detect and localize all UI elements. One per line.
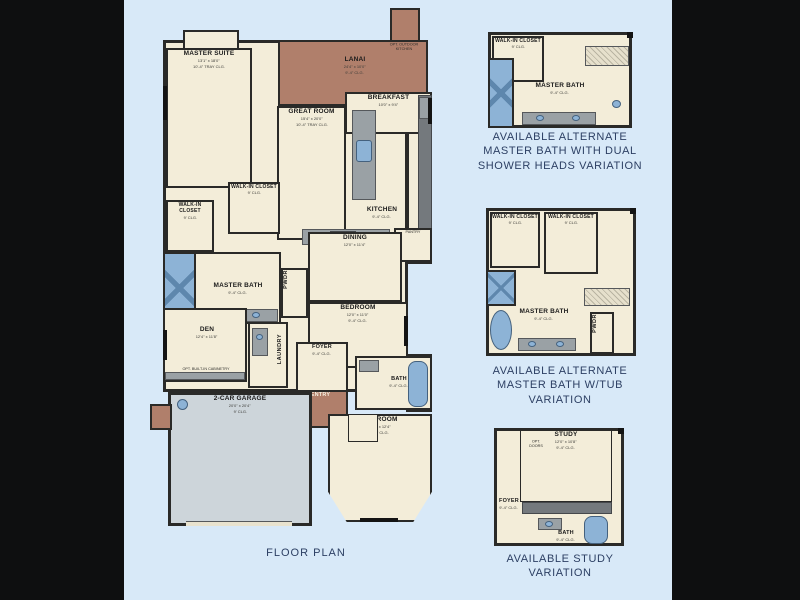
room-garage: 2-CAR GARAGE 20'0" x 20'4" 9' CLG. <box>168 392 312 526</box>
room-dims-lanai: 24'4" x 10'0" <box>344 65 366 70</box>
v3-opt-doors-note: OPT. DOORS <box>526 440 546 448</box>
room-label-walkin-closet-1: WALK-IN CLOSET <box>231 184 277 190</box>
v2-linen-shelves <box>584 288 630 306</box>
room-label-bedroom-1: BEDROOM <box>340 304 375 312</box>
v2-sink-2 <box>556 341 564 347</box>
room-label-pwdr: PWDR <box>283 270 289 289</box>
v1-toilet <box>612 100 621 108</box>
v2-wall-post <box>630 208 636 214</box>
laundry-sink <box>256 334 263 340</box>
opt-den-note: OPT. BUILT-IN CABINETRY <box>177 367 236 371</box>
v3-study: STUDY 12'0" x 10'8" 9'-4" CLG. OPT. DOOR… <box>520 430 612 502</box>
room-label-great-room: GREAT ROOM <box>288 108 334 116</box>
opt-outdoor-kitchen-note: OPT. OUTDOOR KITCHEN <box>389 43 419 51</box>
v1-walkin-closet-dims: 9' CLG. <box>511 45 524 50</box>
v1-sink-2 <box>572 115 580 121</box>
caption-line: MASTER BATH W/TUB <box>470 378 650 392</box>
room-note-master-suite: 10'-4" TRAY CLG. <box>193 65 225 70</box>
room-walkin-closet-1: WALK-IN CLOSET 9' CLG. <box>228 182 280 234</box>
room-master-suite: MASTER SUITE 13'1" x 18'0" 10'-4" TRAY C… <box>166 48 252 188</box>
room-foyer: FOYER 9'-4" CLG. <box>296 342 348 392</box>
caption-line: AVAILABLE ALTERNATE <box>470 364 650 378</box>
v2-sink-1 <box>528 341 536 347</box>
room-bedroom-2: BEDROOM 12'0" x 12'4" 9'-4" CLG. <box>328 414 432 522</box>
v2-pwdr: PWDR <box>590 312 614 354</box>
den-cabinet <box>165 372 245 380</box>
room-label-garage: 2-CAR GARAGE <box>214 395 267 403</box>
v3-study-label: STUDY <box>554 431 577 439</box>
caption-line: AVAILABLE STUDY <box>480 552 640 566</box>
floor-plan-caption: FLOOR PLAN <box>245 546 367 560</box>
room-dims-master-bath: 9'-4" CLG. <box>229 291 247 296</box>
room-note-great-room: 10'-4" TRAY CLG. <box>296 123 328 128</box>
room-pwdr: PWDR <box>281 268 308 318</box>
caption-line: AVAILABLE ALTERNATE <box>470 130 650 144</box>
room-dining: DINING 12'0" x 11'4" <box>308 232 402 302</box>
bedroom-2-closet <box>348 414 378 442</box>
v3-study-dims: 12'0" x 10'8" <box>555 440 577 445</box>
v3-bath-tub <box>584 516 608 544</box>
v2-walkin-closet-2-label: WALK-IN CLOSET <box>548 214 594 220</box>
room-great-room: GREAT ROOM 15'4" x 20'0" 10'-4" TRAY CLG… <box>277 106 346 240</box>
room-label-master-suite: MASTER SUITE <box>184 50 235 58</box>
v3-bath: BATH 9'-4" CLG. <box>548 530 584 543</box>
v3-bath-sink <box>545 521 553 527</box>
v1-master-bath-label: MASTER BATH <box>535 82 584 90</box>
room-dims-garage: 20'0" x 20'4" <box>229 404 251 409</box>
caption-line: VARIATION <box>480 566 640 580</box>
v2-walkin-closet-1: WALK-IN CLOSET 9' CLG. <box>490 212 540 268</box>
caption-line: SHOWER HEADS VARIATION <box>470 159 650 173</box>
room-label-foyer: FOYER <box>312 344 332 351</box>
v3-shelf-strip <box>522 502 612 514</box>
v2-pwdr-label: PWDR <box>592 314 598 333</box>
room-dims-dining: 12'0" x 11'4" <box>344 243 366 248</box>
variation-tub-caption: AVAILABLE ALTERNATE MASTER BATH W/TUB VA… <box>470 364 650 407</box>
window-bedroom-1 <box>404 316 408 346</box>
v3-study-note: 9'-4" CLG. <box>557 446 575 451</box>
room-dims-breakfast: 10'0" x 9'4" <box>379 103 399 108</box>
v1-master-bath-dims: 9'-4" CLG. <box>551 91 569 96</box>
v2-shower <box>486 270 516 306</box>
room-den: DEN 12'4" x 11'8" OPT. BUILT-IN CABINETR… <box>163 308 247 382</box>
v3-foyer-dims: 9'-4" CLG. <box>500 505 518 510</box>
bath-tub <box>408 361 428 407</box>
v1-wall-post <box>627 32 633 38</box>
room-label-lanai: LANAI <box>345 56 366 64</box>
v1-master-bath: MASTER BATH 9'-4" CLG. <box>522 82 598 96</box>
room-laundry: LAUNDRY <box>248 322 288 388</box>
room-dims-great-room: 15'4" x 20'0" <box>301 117 323 122</box>
room-note-bedroom-1: 9'-4" CLG. <box>349 319 367 324</box>
garage-door <box>186 521 292 526</box>
v1-sink-1 <box>536 115 544 121</box>
v2-tub <box>490 310 512 350</box>
v2-walkin-closet-1-dims: 9' CLG. <box>508 221 521 226</box>
variation-dual-shower-caption: AVAILABLE ALTERNATE MASTER BATH WITH DUA… <box>470 130 650 173</box>
caption-line: MASTER BATH WITH DUAL <box>470 144 650 158</box>
v3-bath-dims: 9'-4" CLG. <box>557 537 575 542</box>
garage-side-stoop <box>150 404 172 430</box>
v3-bath-label: BATH <box>558 530 574 537</box>
window-breakfast <box>428 98 432 124</box>
v2-master-bath: MASTER BATH 9'-4" CLG. <box>514 308 574 322</box>
room-dims-walkin-closet-1: 9' CLG. <box>247 191 260 196</box>
room-label-entry: ENTRY <box>311 392 330 399</box>
water-heater <box>177 399 188 410</box>
v1-linen-shelves <box>585 46 629 66</box>
window-den <box>163 330 167 360</box>
room-dims-master-suite: 13'1" x 18'0" <box>198 59 220 64</box>
washer-dryer <box>252 328 268 356</box>
room-label-dining: DINING <box>343 234 367 242</box>
page: LANAI 24'4" x 10'0" 9'-4" CLG. OPT. OUTD… <box>0 0 800 600</box>
v2-walkin-closet-2-dims: 9' CLG. <box>564 221 577 226</box>
room-note-lanai: 9'-4" CLG. <box>346 71 364 76</box>
room-label-kitchen: KITCHEN <box>367 206 397 214</box>
master-bath-sink-2 <box>252 312 260 318</box>
room-label-walkin-closet-2: WALK-IN CLOSET <box>168 202 212 215</box>
v2-vanity <box>518 338 576 351</box>
v2-walkin-closet-1-label: WALK-IN CLOSET <box>492 214 538 220</box>
v1-walkin-closet-label: WALK-IN CLOSET <box>495 38 541 44</box>
room-label-bath: BATH <box>391 376 407 383</box>
window-master-suite <box>163 86 167 120</box>
room-bath: BATH 9'-4" CLG. <box>355 356 432 410</box>
room-dims-kitchen: 9'-4" CLG. <box>373 215 391 220</box>
v3-wall-post <box>618 428 624 434</box>
kitchen-sink <box>356 140 372 162</box>
v3-foyer-label: FOYER <box>499 498 519 505</box>
window-bedroom-2 <box>360 518 398 522</box>
v1-vanity <box>522 112 596 125</box>
room-label-pantry: PANTRY <box>406 231 421 235</box>
room-dims-bath: 9'-4" CLG. <box>390 383 408 388</box>
caption-line: VARIATION <box>470 393 650 407</box>
room-dims-bedroom-1: 12'0" x 11'0" <box>347 313 369 318</box>
bath-vanity <box>359 360 379 372</box>
room-label-den: DEN <box>200 326 214 334</box>
room-label-master-bath: MASTER BATH <box>213 282 262 290</box>
room-dims-foyer: 9'-4" CLG. <box>313 351 331 356</box>
v2-master-bath-label: MASTER BATH <box>519 308 568 316</box>
variation-study-caption: AVAILABLE STUDY VARIATION <box>480 552 640 581</box>
outdoor-kitchen-chimney <box>390 8 420 44</box>
room-walkin-closet-2: WALK-IN CLOSET 9' CLG. <box>166 200 214 252</box>
room-kitchen: KITCHEN 9'-4" CLG. <box>352 206 412 220</box>
v1-dual-shower <box>488 58 514 128</box>
v3-foyer: FOYER 9'-4" CLG. <box>494 498 524 511</box>
room-dims-den: 12'4" x 11'8" <box>196 335 218 340</box>
room-dims-walkin-closet-2: 9' CLG. <box>183 215 196 220</box>
room-label-breakfast: BREAKFAST <box>368 94 410 102</box>
v2-master-bath-dims: 9'-4" CLG. <box>535 317 553 322</box>
room-note-garage: 9' CLG. <box>233 410 246 415</box>
room-label-laundry: LAUNDRY <box>277 334 283 364</box>
v2-walkin-closet-2: WALK-IN CLOSET 9' CLG. <box>544 212 598 274</box>
